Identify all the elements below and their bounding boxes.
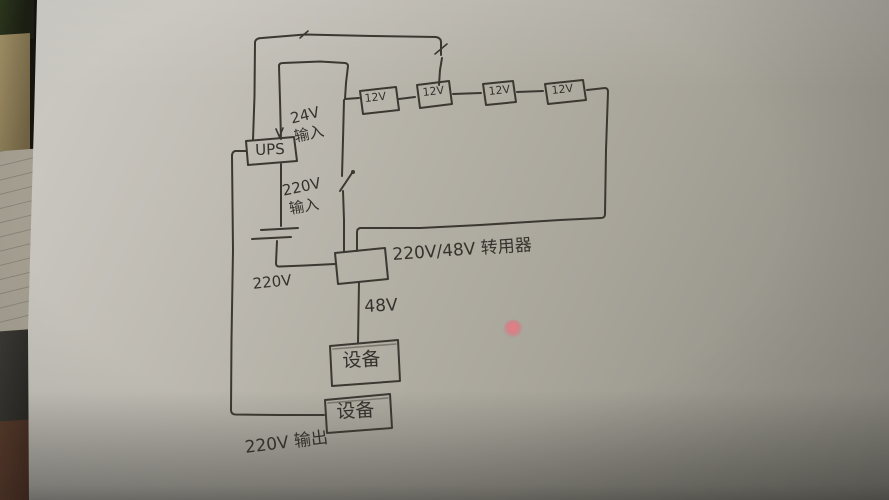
photo-of-sketch: UPS 12V 12V 12V 12V 24V 输入 220V 输入 220V … <box>0 0 889 500</box>
wire-middle-drop-lower <box>343 191 344 251</box>
converter-box <box>335 248 388 284</box>
device-1-label: 设备 <box>342 350 381 372</box>
arrow-mark-inner-wire <box>276 128 283 137</box>
laser-dot <box>503 320 523 337</box>
battery-3-label: 12V <box>488 84 511 98</box>
plug-symbol <box>252 228 298 239</box>
wire-48v <box>358 282 359 343</box>
wire-battery-links <box>399 91 543 99</box>
wire-battery-return <box>357 88 608 251</box>
battery-4-label: 12V <box>551 83 574 97</box>
device-2-label: 设备 <box>336 401 375 423</box>
switch-contact <box>351 170 355 174</box>
wire-mains-to-converter <box>276 241 335 267</box>
battery-2-label: 12V <box>422 85 445 99</box>
wire-48v-label: 48V <box>364 297 398 317</box>
battery-1-label: 12V <box>364 91 387 105</box>
ups-label: UPS <box>255 142 285 159</box>
wire-middle-drop <box>342 100 344 176</box>
